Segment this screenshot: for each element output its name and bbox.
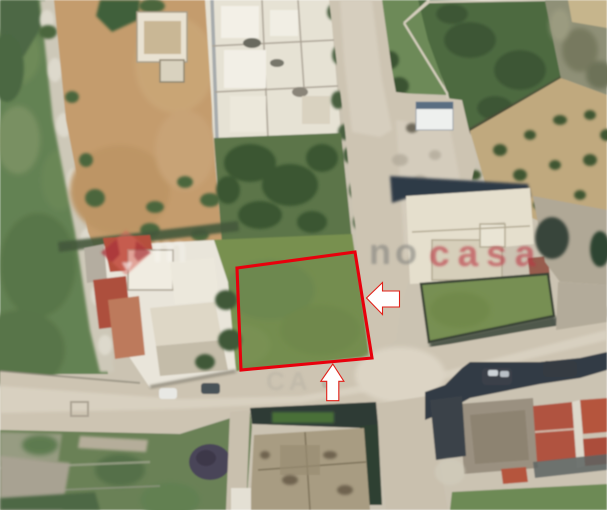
svg-text:casa: casa [429,233,543,274]
svg-text:CA: CA [266,366,312,396]
svg-text:no: no [369,231,421,272]
svg-text:m: m [152,227,188,271]
